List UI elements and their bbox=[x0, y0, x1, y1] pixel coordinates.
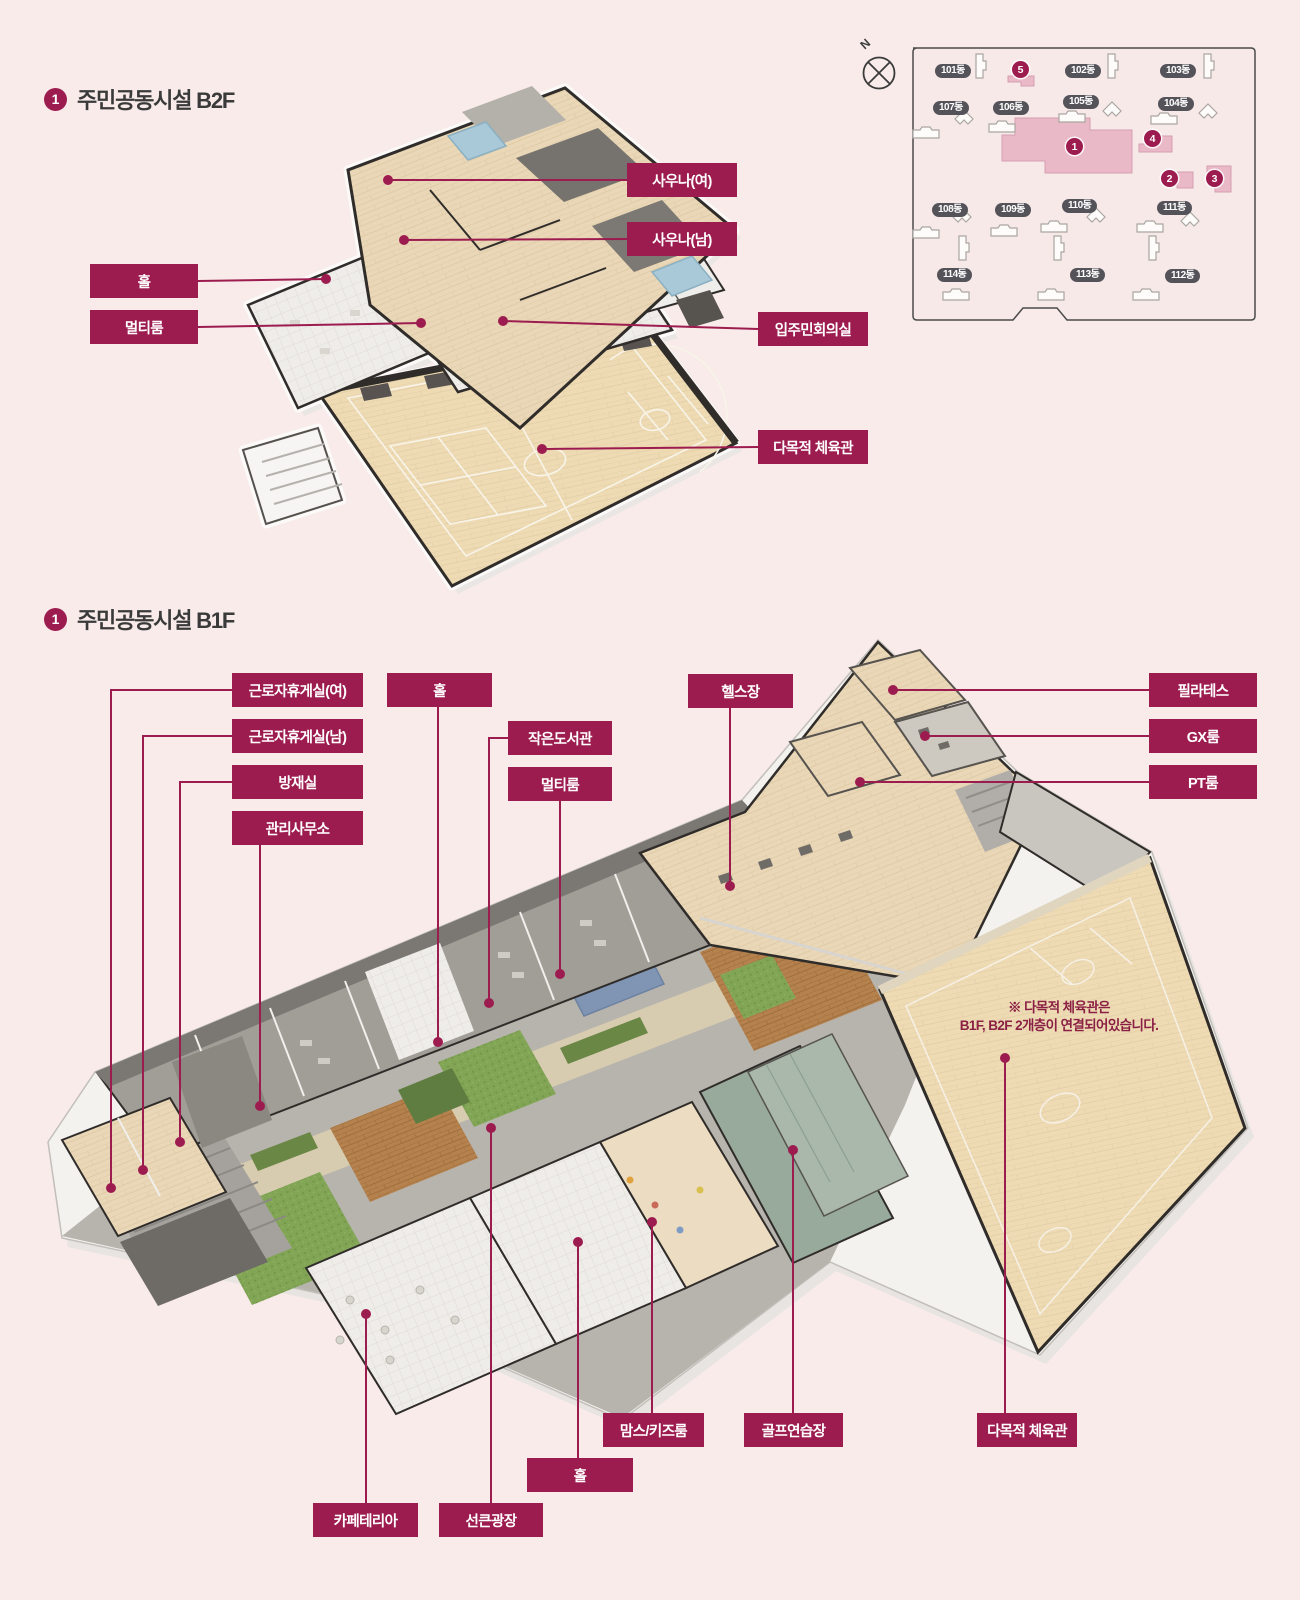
site-map-badge-3: 3 bbox=[1206, 170, 1223, 187]
label-golf-range: 골프연습장 bbox=[744, 1413, 843, 1447]
label-sunken-plaza: 선큰광장 bbox=[439, 1503, 543, 1537]
site-map-badge-5: 5 bbox=[1012, 61, 1029, 78]
page-canvas: 1 주민공동시설 B2F 1 주민공동시설 B1F 사우나(여) 사우나(남) … bbox=[0, 0, 1300, 1600]
site-map-building-105: 105동 bbox=[1063, 95, 1099, 109]
label-small-library: 작은도서관 bbox=[508, 721, 612, 755]
label-b1f-multipurpose-gym: 다목적 체육관 bbox=[977, 1413, 1077, 1447]
b2f-title-text: 주민공동시설 B2F bbox=[77, 83, 234, 115]
label-sauna-male: 사우나(남) bbox=[627, 222, 737, 256]
site-map-badge-1: 1 bbox=[1066, 138, 1083, 155]
label-b1f-multi-room: 멀티룸 bbox=[508, 767, 612, 801]
label-fitness-center: 헬스장 bbox=[688, 674, 793, 708]
label-residents-meeting-room: 입주민회의실 bbox=[758, 312, 868, 346]
label-b2f-multi-room: 멀티룸 bbox=[90, 310, 198, 344]
site-map-building-109: 109동 bbox=[995, 203, 1031, 217]
site-map-building-114: 114동 bbox=[937, 268, 972, 282]
site-map-building-107: 107동 bbox=[933, 101, 969, 115]
label-cafeteria: 카페테리아 bbox=[313, 1503, 418, 1537]
label-disaster-prevention-room: 방재실 bbox=[232, 765, 363, 799]
note-line-2: B1F, B2F 2개층이 연결되어있습니다. bbox=[929, 1017, 1189, 1035]
label-gx-room: GX룸 bbox=[1149, 719, 1257, 753]
label-pilates: 필라테스 bbox=[1149, 673, 1257, 707]
site-map-building-101: 101동 bbox=[935, 64, 971, 78]
label-b2f-multipurpose-gym: 다목적 체육관 bbox=[758, 430, 868, 464]
label-b2f-hall: 홀 bbox=[90, 264, 198, 298]
compass-icon bbox=[864, 58, 895, 89]
label-moms-kids-room: 맘스/키즈룸 bbox=[603, 1413, 704, 1447]
site-map-badge-2: 2 bbox=[1161, 170, 1178, 187]
label-management-office: 관리사무소 bbox=[232, 811, 363, 845]
site-map-building-113: 113동 bbox=[1070, 268, 1105, 282]
site-map-building-108: 108동 bbox=[932, 203, 968, 217]
b1f-number-badge: 1 bbox=[44, 608, 67, 631]
label-b1f-hall-bottom: 홀 bbox=[527, 1458, 633, 1492]
site-map-building-103: 103동 bbox=[1160, 64, 1196, 78]
b1f-section-title: 1 주민공동시설 B1F bbox=[44, 603, 234, 635]
site-map-building-104: 104동 bbox=[1158, 97, 1194, 111]
label-worker-lounge-female: 근로자휴게실(여) bbox=[232, 673, 363, 707]
b2f-section-title: 1 주민공동시설 B2F bbox=[44, 83, 234, 115]
label-worker-lounge-male: 근로자휴게실(남) bbox=[232, 719, 363, 753]
site-map-building-110: 110동 bbox=[1062, 199, 1097, 213]
label-pt-room: PT룸 bbox=[1149, 765, 1257, 799]
site-map-building-102: 102동 bbox=[1065, 64, 1101, 78]
b2f-number-badge: 1 bbox=[44, 88, 67, 111]
b1f-title-text: 주민공동시설 B1F bbox=[77, 603, 234, 635]
site-map-badge-4: 4 bbox=[1144, 130, 1161, 147]
gym-connection-note: ※ 다목적 체육관은 B1F, B2F 2개층이 연결되어있습니다. bbox=[929, 999, 1189, 1035]
site-map-building-111: 111동 bbox=[1157, 201, 1192, 215]
site-map-building-106: 106동 bbox=[993, 101, 1029, 115]
site-map-building-112: 112동 bbox=[1165, 269, 1200, 283]
note-line-1: ※ 다목적 체육관은 bbox=[929, 999, 1189, 1017]
label-b1f-hall-top: 홀 bbox=[387, 673, 492, 707]
label-sauna-female: 사우나(여) bbox=[627, 163, 737, 197]
